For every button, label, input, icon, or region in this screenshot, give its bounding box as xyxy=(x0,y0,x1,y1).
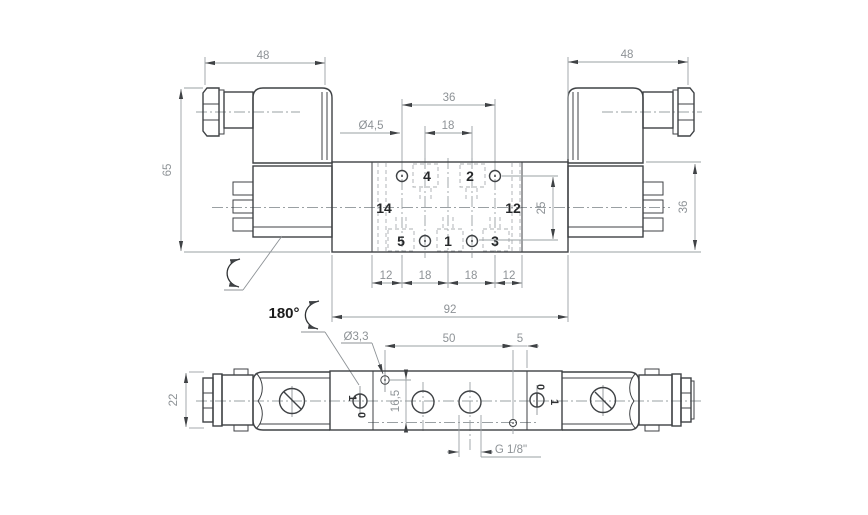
override-label-0-right: 0 xyxy=(534,384,546,390)
dim-body-length: 92 xyxy=(444,304,457,316)
dim-coil-width-right: 48 xyxy=(621,49,634,61)
dim-hole-span: 36 xyxy=(443,92,456,104)
dim-hole-to-edge: 5 xyxy=(517,333,523,345)
valve-technical-drawing: 4 2 14 12 5 1 3 48 48 65 xyxy=(0,0,868,515)
valve-body-bottom xyxy=(330,371,562,430)
override-label-1-right: 1 xyxy=(548,399,560,405)
rotation-callout: 180° xyxy=(224,236,359,385)
dim-body-height: 22 xyxy=(168,394,180,407)
right-solenoid-bottom xyxy=(562,369,694,431)
right-solenoid-top xyxy=(568,88,694,237)
port-label-12: 12 xyxy=(505,200,521,216)
dim-pilot-hole-diameter: Ø3,3 xyxy=(344,331,369,343)
rotation-angle-label: 180° xyxy=(268,305,299,322)
port-label-1: 1 xyxy=(444,233,452,249)
top-view-dimensions: 48 48 65 36 36 18 xyxy=(162,49,701,322)
dim-overall-height: 65 xyxy=(162,164,174,177)
port-label-14: 14 xyxy=(376,200,392,216)
left-solenoid-top xyxy=(203,88,332,237)
dim-port-span: 50 xyxy=(443,333,456,345)
dim-hole-to-edge-right: 12 xyxy=(503,270,516,282)
top-view: 4 2 14 12 5 1 3 48 48 65 xyxy=(162,49,702,385)
override-label-0-left: 0 xyxy=(355,412,367,418)
port-label-2: 2 xyxy=(466,168,474,184)
dim-center-to-hole-right: 18 xyxy=(465,270,478,282)
left-solenoid-bottom xyxy=(203,369,330,431)
override-label-1-left: 1 xyxy=(346,395,358,401)
bottom-view: 1 0 0 1 xyxy=(168,331,702,457)
dim-coil-width-left: 48 xyxy=(257,50,270,62)
dim-edge-to-hole-left: 12 xyxy=(380,270,393,282)
dim-hole-pitch: 18 xyxy=(442,120,455,132)
drawing-canvas: 4 2 14 12 5 1 3 48 48 65 xyxy=(0,0,868,515)
dim-hole-to-center-left: 18 xyxy=(419,270,432,282)
dim-port-row-span: 25 xyxy=(536,202,548,215)
dim-port-offset: 16,5 xyxy=(390,390,402,412)
dim-hole-diameter: Ø4,5 xyxy=(359,120,384,132)
dim-solenoid-width: 36 xyxy=(678,201,690,214)
dim-port-thread: G 1/8" xyxy=(495,444,527,456)
port-label-3: 3 xyxy=(491,233,499,249)
bottom-view-centerlines xyxy=(196,368,702,450)
rotation-arrow-icon xyxy=(227,259,240,287)
manual-override-left: 1 0 xyxy=(346,394,367,418)
manual-override-right: 0 1 xyxy=(530,384,560,407)
port-label-5: 5 xyxy=(397,233,405,249)
port-label-4: 4 xyxy=(423,168,431,184)
rotation-arrow-icon xyxy=(305,301,319,329)
